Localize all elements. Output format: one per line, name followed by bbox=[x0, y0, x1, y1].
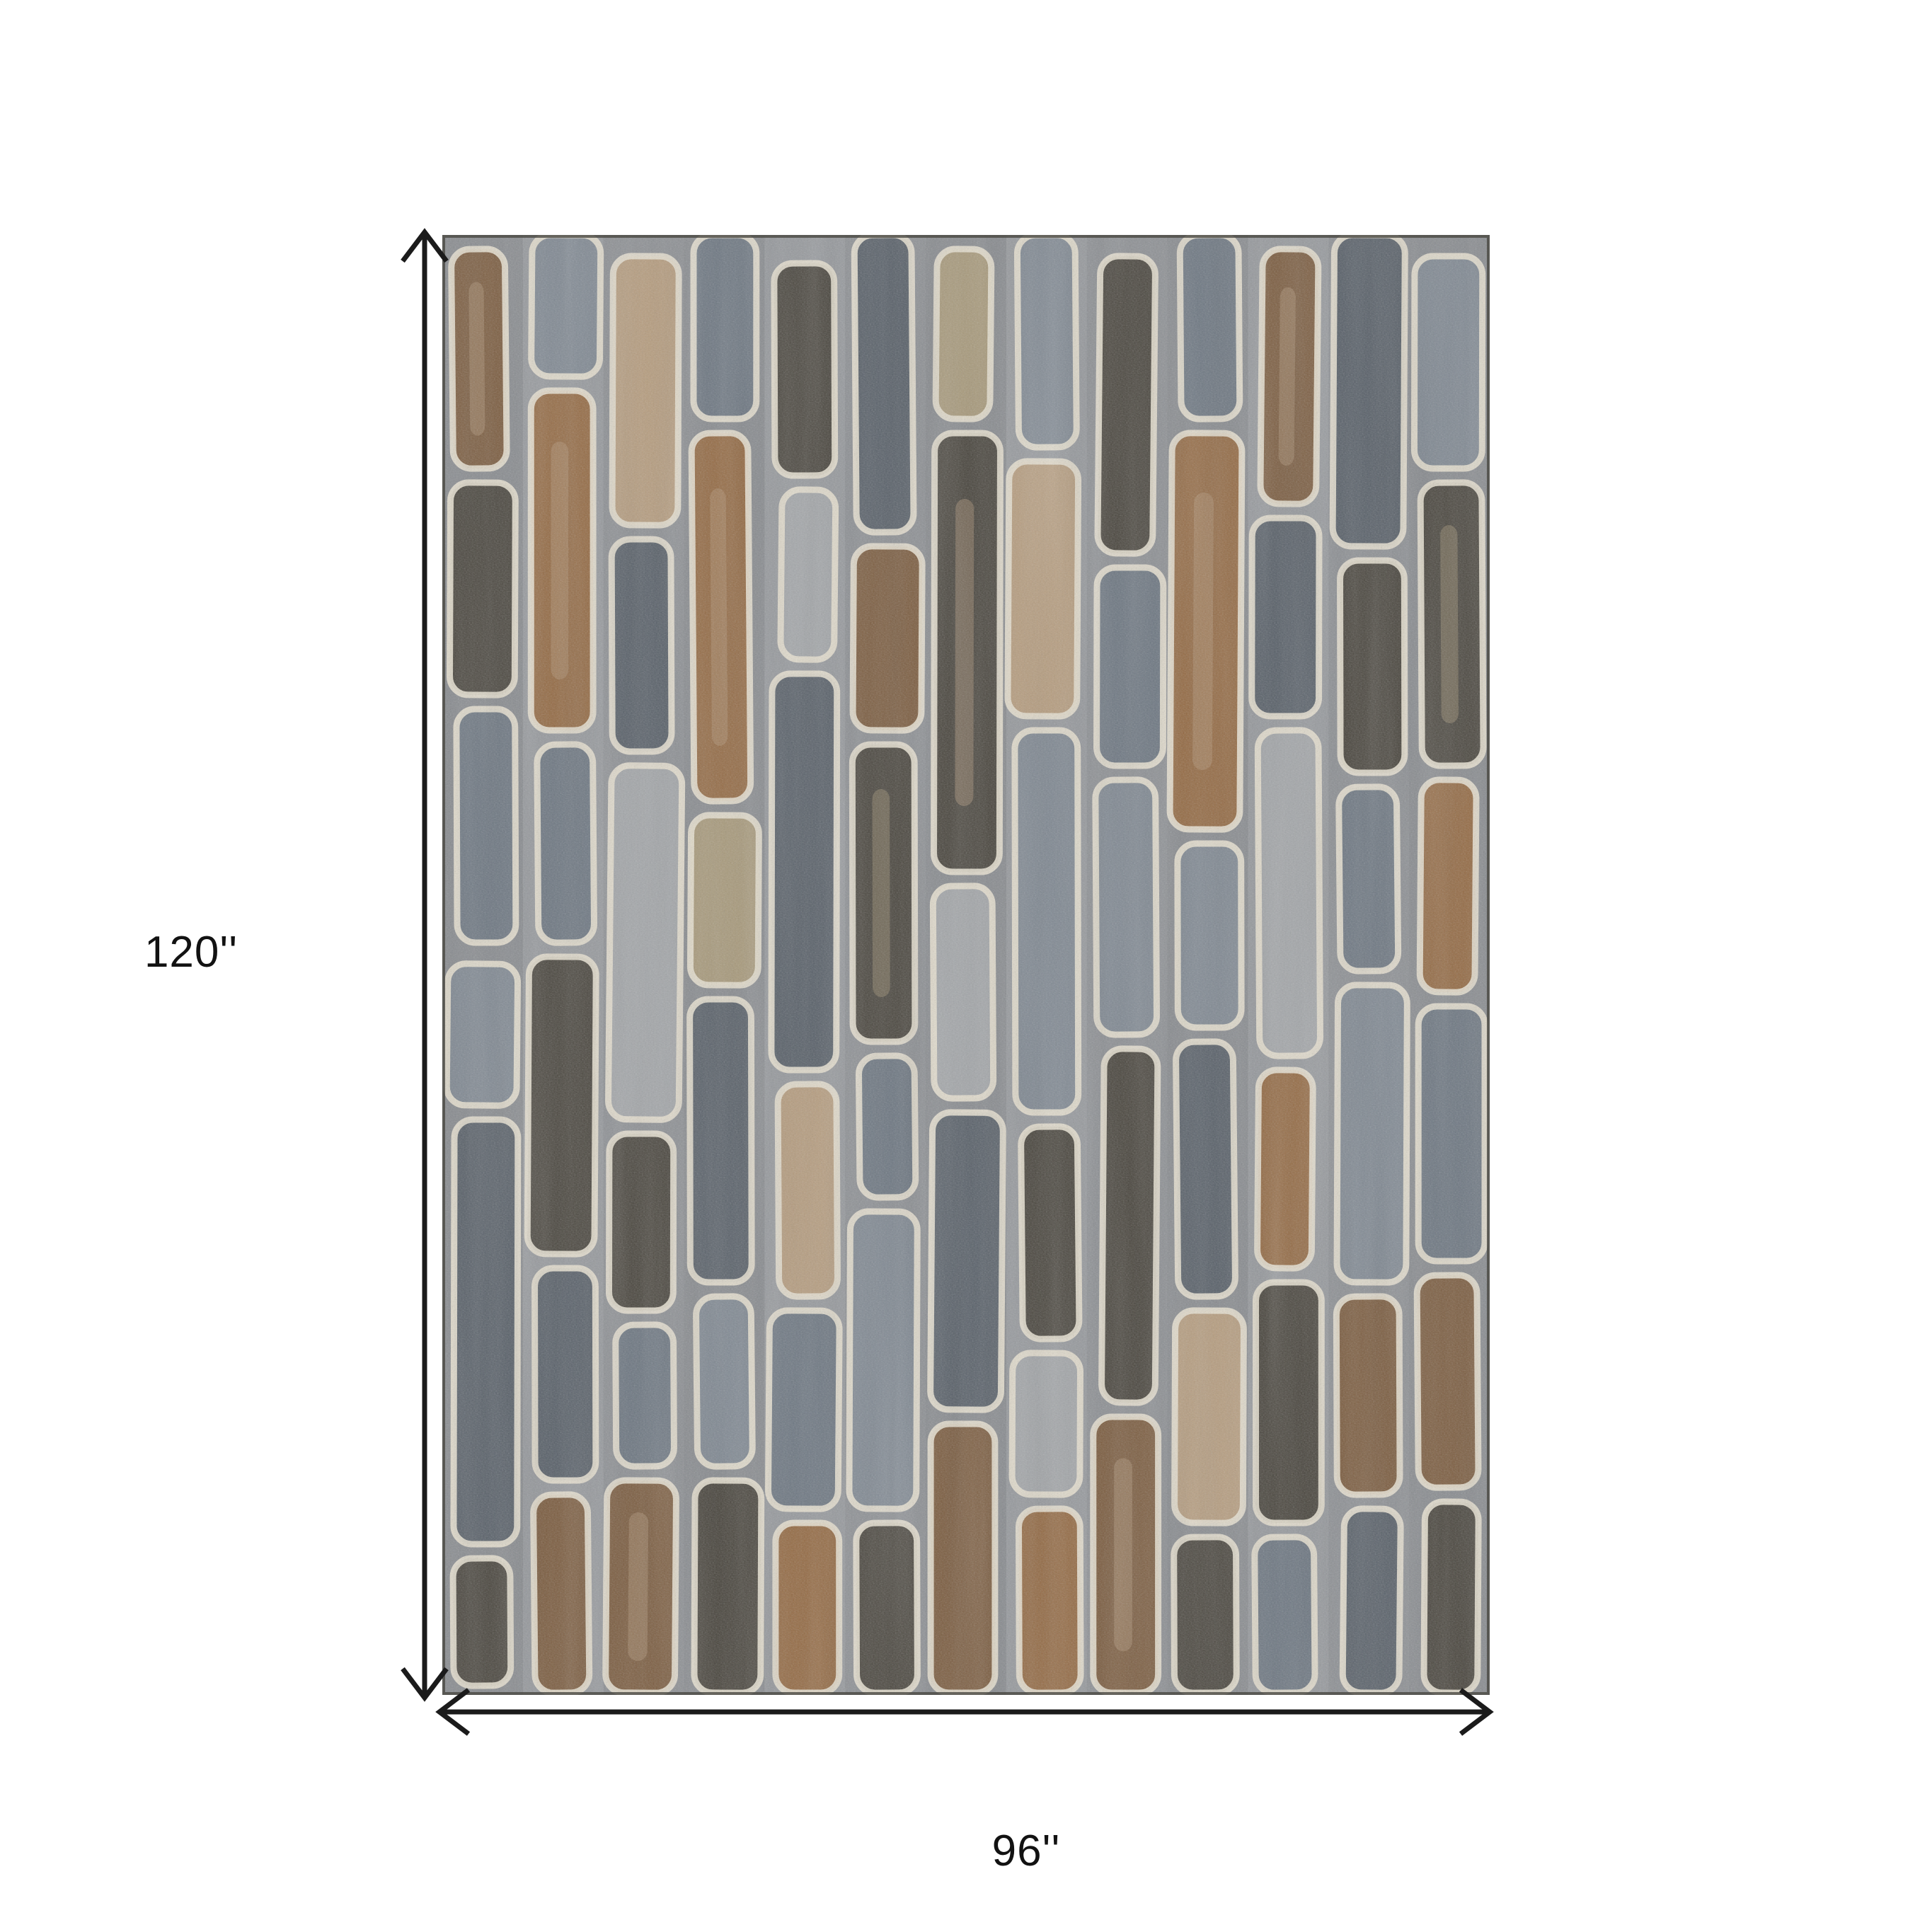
rug-pattern bbox=[442, 235, 1490, 1695]
width-dimension-label: 96'' bbox=[992, 1829, 1061, 1873]
arrow-up-icon bbox=[403, 232, 447, 261]
product-dimension-diagram: 120'' 96'' bbox=[0, 0, 1932, 1932]
height-dimension-label: 120'' bbox=[144, 931, 238, 974]
arrow-left-icon bbox=[439, 1690, 468, 1734]
arrow-right-icon bbox=[1461, 1690, 1490, 1734]
rug-image bbox=[442, 235, 1490, 1695]
arrow-down-icon bbox=[403, 1669, 447, 1698]
